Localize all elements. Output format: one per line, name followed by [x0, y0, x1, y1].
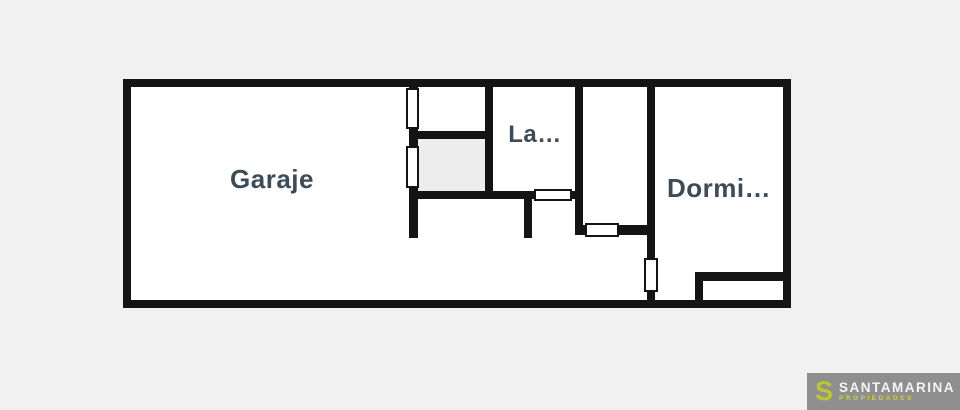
wall-closet-left [695, 272, 703, 308]
room-label-dormitorio: Dormi… [653, 173, 785, 204]
wall-storage-divider [409, 131, 493, 139]
room-label-lavadero: La… [492, 121, 578, 149]
wall-closet-top [695, 272, 791, 281]
wall-stub-middle [524, 199, 532, 238]
wall-outer-top [123, 79, 791, 87]
window-symbol [406, 88, 419, 129]
door-symbol [585, 223, 619, 237]
brand-text-block: SANTAMARINA PROPIEDADES [839, 381, 955, 403]
brand-name: SANTAMARINA [839, 381, 955, 395]
brand-watermark: S SANTAMARINA PROPIEDADES [807, 373, 960, 410]
wall-outer-bottom [123, 300, 791, 308]
brand-logo-icon: S [815, 378, 833, 405]
window-symbol [406, 146, 419, 188]
wall-stub-left [409, 199, 418, 238]
room-label-garaje: Garaje [172, 164, 372, 195]
brand-tagline: PROPIEDADES [839, 396, 955, 403]
door-symbol [534, 189, 572, 201]
door-symbol [644, 258, 658, 292]
shaded-room [417, 139, 485, 191]
floorplan-canvas: Garaje La… Dormi… S SANTAMARINA PROPIEDA… [0, 0, 960, 410]
wall-hall-left [575, 87, 583, 235]
wall-outer-left [123, 79, 131, 308]
